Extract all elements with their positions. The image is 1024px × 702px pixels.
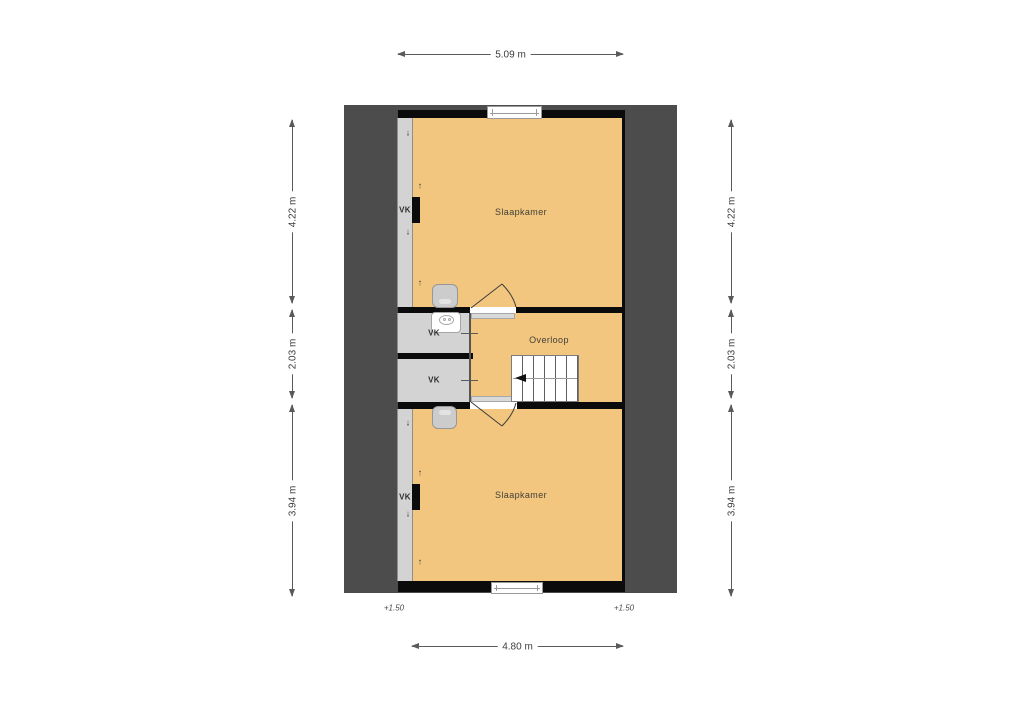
dimension-label-left-lower: 3.94 m — [287, 480, 298, 521]
slope-up-icon: ↑ — [418, 279, 423, 288]
label-closet-bottom: VK — [428, 376, 440, 385]
slope-down-icon: ↓ — [406, 419, 411, 428]
arrow-up-icon — [728, 119, 734, 127]
dimension-label-right-lower: 3.94 m — [726, 480, 737, 521]
elevation-label-right: +1.50 — [614, 604, 634, 613]
arrow-down-icon — [728, 589, 734, 597]
arrow-down-icon — [728, 391, 734, 399]
room-label-bedroom-bottom: Slaapkamer — [495, 490, 547, 500]
dimension-line-right-upper: 4.22 m — [731, 120, 732, 303]
label-knee-wall-top: VK — [399, 206, 411, 215]
arrow-down-icon — [728, 296, 734, 304]
label-closet-top: VK — [428, 329, 440, 338]
arrow-right-icon — [616, 643, 624, 649]
door-swing-bottom — [471, 402, 516, 426]
elevation-label-left: +1.50 — [384, 604, 404, 613]
arrow-down-icon — [289, 391, 295, 399]
slope-up-icon: ↑ — [418, 469, 423, 478]
slope-down-icon: ↓ — [406, 129, 411, 138]
arrow-up-icon — [289, 309, 295, 317]
dimension-line-left-upper: 4.22 m — [292, 120, 293, 303]
arrow-up-icon — [289, 119, 295, 127]
dimension-line-left-lower: 3.94 m — [292, 405, 293, 596]
slope-down-icon: ↓ — [406, 228, 411, 237]
arrow-down-icon — [289, 589, 295, 597]
dimension-label-right-upper: 4.22 m — [726, 191, 737, 232]
door-swing-top — [471, 284, 516, 308]
arrow-left-icon — [397, 51, 405, 57]
arrow-down-icon — [289, 296, 295, 304]
dimension-line-right-middle: 2.03 m — [731, 310, 732, 398]
dimension-line-bottom: 4.80 m — [412, 646, 623, 647]
slope-up-icon: ↑ — [418, 182, 423, 191]
floorplan-canvas: 5.09 m 4.22 m 2.03 m 3.94 m 4.22 m 2.03 … — [0, 0, 1024, 702]
dimension-label-left-middle: 2.03 m — [287, 334, 298, 375]
dimension-line-right-lower: 3.94 m — [731, 405, 732, 596]
arrow-left-icon — [411, 643, 419, 649]
dimension-label-left-upper: 4.22 m — [287, 191, 298, 232]
arrow-up-icon — [289, 404, 295, 412]
dimension-label-bottom: 4.80 m — [497, 641, 538, 652]
dimension-label-right-middle: 2.03 m — [726, 334, 737, 375]
arrow-up-icon — [728, 404, 734, 412]
room-label-landing: Overloop — [529, 335, 569, 345]
slope-down-icon: ↓ — [406, 510, 411, 519]
slope-up-icon: ↑ — [418, 558, 423, 567]
dimension-label-top: 5.09 m — [490, 49, 531, 60]
door-swings-overlay — [344, 105, 677, 593]
dimension-line-left-middle: 2.03 m — [292, 310, 293, 398]
dimension-line-top: 5.09 m — [398, 54, 623, 55]
room-label-bedroom-top: Slaapkamer — [495, 207, 547, 217]
arrow-up-icon — [728, 309, 734, 317]
label-knee-wall-bottom: VK — [399, 493, 411, 502]
arrow-right-icon — [616, 51, 624, 57]
